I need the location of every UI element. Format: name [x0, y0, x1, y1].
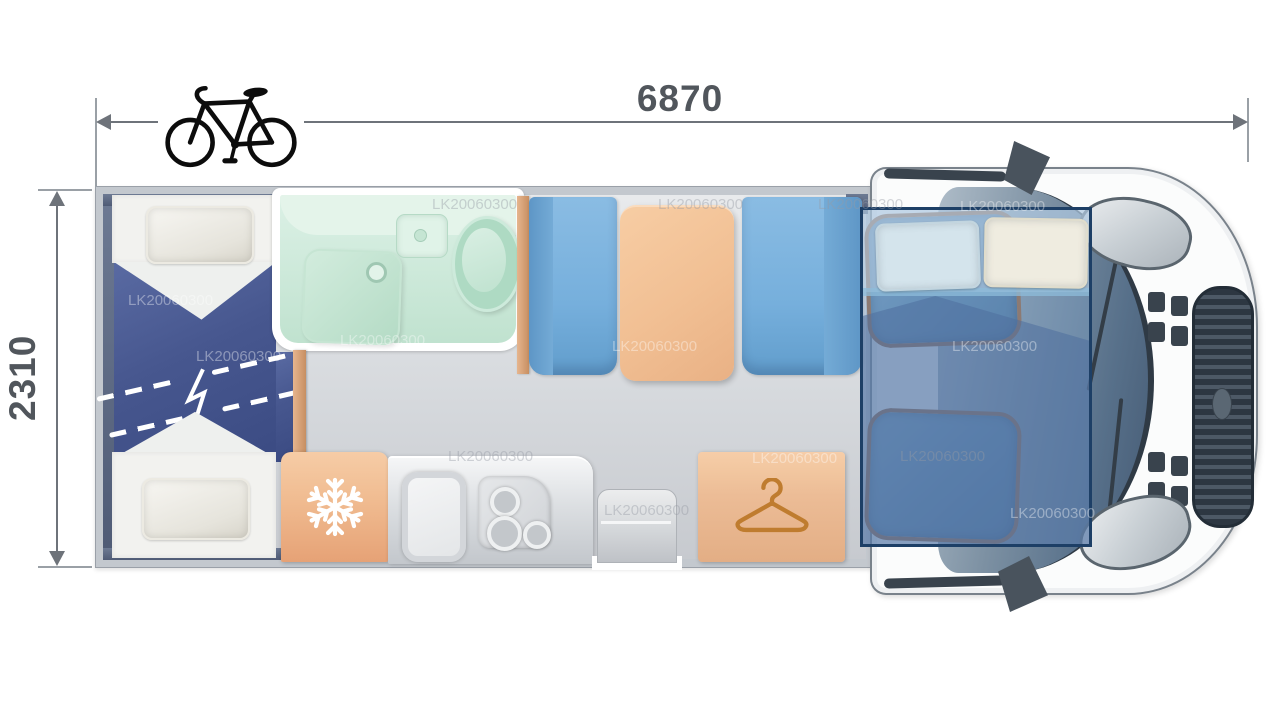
- dimension-arrow-left-icon: [96, 114, 111, 130]
- extension-line-top-right: [1247, 98, 1249, 162]
- burner-icon: [523, 521, 551, 549]
- burner-icon: [487, 516, 522, 551]
- shower-tray: [301, 248, 402, 345]
- shower-drain-icon: [366, 262, 387, 283]
- brand-badge-icon: [1212, 388, 1232, 420]
- rear-bed-top-pillow: [146, 206, 254, 264]
- extension-line-left-top: [38, 189, 92, 191]
- wardrobe: [698, 452, 845, 562]
- motorhome-floorplan-diagram: 6870 2310: [0, 0, 1280, 720]
- bonnet-vent: [1171, 456, 1188, 476]
- dimension-arrow-down-icon: [49, 551, 65, 566]
- dimension-arrow-right-icon: [1233, 114, 1248, 130]
- fridge: [281, 452, 388, 562]
- partition-bath-dinette: [517, 196, 529, 374]
- extension-line-top-left: [95, 98, 97, 186]
- dinette-bench-left-backrest: [529, 197, 553, 375]
- bonnet-vent: [1148, 452, 1165, 472]
- entry-step-edge: [601, 521, 671, 524]
- bonnet-vent: [1148, 292, 1165, 312]
- snowflake-icon: [303, 475, 367, 539]
- overcab-pillow-right: [983, 217, 1088, 289]
- burner-icon: [490, 487, 520, 517]
- width-dimension-line: [56, 193, 58, 564]
- toilet-seat: [462, 228, 506, 292]
- dimension-arrow-up-icon: [49, 191, 65, 206]
- overcab-pillow-left: [875, 220, 981, 292]
- dinette-bench-right-backrest: [824, 197, 862, 375]
- bonnet-vent: [1148, 322, 1165, 342]
- extension-line-left-bottom: [38, 566, 92, 568]
- bonnet-vent: [1171, 326, 1188, 346]
- clothes-hanger-icon: [728, 478, 816, 536]
- partition-bed-kitchen: [293, 350, 306, 454]
- entry-step: [597, 489, 677, 563]
- length-dimension-label: 6870: [590, 78, 770, 120]
- bonnet-vent: [1171, 296, 1188, 316]
- rear-bed-bottom-pillow: [142, 478, 250, 540]
- width-dimension-label: 2310: [2, 288, 44, 468]
- bicycle-icon: [158, 74, 304, 174]
- kitchen-sink: [402, 472, 466, 562]
- dinette-table: [620, 205, 734, 381]
- bathroom-faucet-icon: [414, 229, 427, 242]
